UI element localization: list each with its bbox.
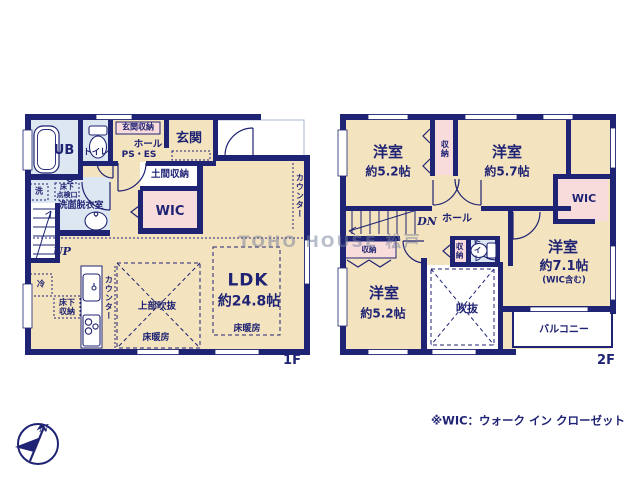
label-underfloor-storage: 床下 収納 (59, 298, 75, 316)
room-label-void: 吹抜 (456, 303, 478, 315)
room-label-balcony: バルコニー (539, 325, 589, 336)
label-floor-heating-b: 床暖房 (233, 325, 260, 335)
room-label-toilet-1f: トイレ (83, 148, 109, 157)
room-label-wic-2f: WIC (572, 193, 596, 205)
room-label-east-size: 約7.1帖 (539, 260, 588, 274)
floor-label-2f: 2F (597, 354, 615, 368)
room-label-sw-size: 約5.2帖 (360, 307, 405, 320)
room-label-wic-1f: WIC (156, 205, 185, 219)
floorplan-page: UB トイレ 玄関収納 ホール PS・ES 玄関 土間収納 WIC 洗 床下 点… (0, 0, 640, 480)
room-label-doma-storage: 土間収納 (151, 170, 189, 180)
room-label-entrance: 玄関 (176, 132, 202, 146)
room-label-ldk: LDK (227, 272, 268, 291)
label-side-counter: カウンター (295, 174, 304, 219)
label-entrance-storage: 玄関収納 (122, 124, 154, 133)
room-label-ne-size: 約5.7帖 (484, 165, 529, 178)
room-label-ne: 洋室 (492, 144, 522, 161)
room-label-toilet-2f: トイレ (473, 237, 481, 263)
room-label-ub: UB (54, 144, 74, 158)
room-label-hall-1f: ホール (134, 140, 163, 150)
compass-north-label: N (39, 424, 48, 435)
floor-label-1f: 1F (283, 354, 301, 368)
room-label-washroom: 洗面脱衣室 (58, 202, 103, 212)
label-stairs-down: DN (417, 216, 437, 228)
stove-icon (83, 315, 100, 346)
room-label-nw: 洋室 (373, 144, 403, 161)
watermark: TOHO HOUSE 松戸 (238, 233, 421, 251)
room-label-east: 洋室 (548, 239, 578, 256)
label-upper-void: 上部吹抜 (138, 302, 176, 312)
compass-icon (15, 423, 58, 464)
washbasin-icon (85, 212, 107, 230)
label-stairs-up: UP (53, 246, 71, 258)
room-label-hall-2f: ホール (442, 214, 472, 225)
label-closet-north: 収納 (440, 140, 449, 158)
room-label-sw: 洋室 (369, 285, 399, 302)
footnote-wic: ※WIC：ウォーク イン クローゼット (431, 415, 625, 428)
label-laundry: 洗 (35, 188, 43, 197)
label-underfloor-hatch: 床下 点検口 (57, 183, 78, 199)
room-label-nw-size: 約5.2帖 (365, 165, 410, 178)
kitchen-sink-icon (83, 274, 100, 301)
label-floor-heating-a: 床暖房 (142, 334, 169, 344)
room-label-ldk-size: 約24.8帖 (218, 294, 281, 309)
label-closet-center: 収納 (455, 243, 463, 260)
label-kitchen-counter: カウンター (104, 276, 113, 321)
room-label-east-note: (WIC含む) (542, 276, 586, 285)
label-fridge: 冷 (37, 281, 45, 290)
label-ps-es: PS・ES (122, 151, 157, 161)
